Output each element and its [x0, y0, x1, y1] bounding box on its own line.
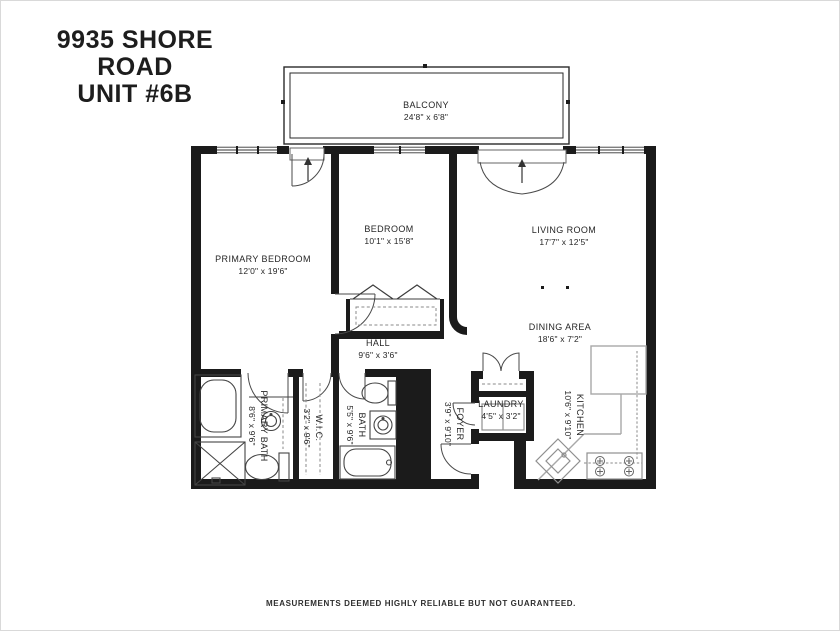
balcony-door-icon [290, 148, 324, 186]
entry-door-icon [441, 444, 471, 474]
bath-door-icon [339, 373, 365, 399]
bathtub-icon [340, 446, 395, 479]
primary-bedroom-door-icon [335, 294, 375, 334]
room-label-foyer: FOYER 3'9" x 9'10" [443, 402, 465, 446]
window-icon-primary-bedroom [215, 146, 279, 154]
upper-cabinet-lines [584, 351, 642, 463]
unit-line: UNIT #6B [25, 81, 245, 108]
fridge-icon [591, 346, 646, 394]
room-label-hall: HALL 9'6" x 3'6" [358, 338, 397, 360]
french-doors-icon [478, 150, 566, 194]
disclaimer-text: MEASUREMENTS DEEMED HIGHLY RELIABLE BUT … [1, 599, 840, 608]
vanity-sink-icon [370, 411, 396, 439]
shower-icon [195, 442, 245, 485]
room-label-primary-bath: PRIMARY BATH 8'6" x 9'6" [247, 390, 269, 461]
bathtub-icon [195, 375, 241, 437]
kitchen-fixtures [536, 346, 646, 483]
wic-door-icon [303, 373, 331, 401]
toilet-icon [362, 381, 396, 405]
stove-icon [587, 453, 642, 479]
room-label-wic: W.I.C. 3'2" x 9'6" [302, 408, 324, 447]
room-label-laundry: LAUNDRY 4'5" x 3'2" [478, 399, 524, 421]
floorplan-page: 9935 SHORE ROAD UNIT #6B BALCONY 24'8" x… [0, 0, 840, 631]
closet-double-door-icon [483, 353, 519, 371]
room-label-living-room: LIVING ROOM 17'7" x 12'5" [532, 225, 596, 247]
room-label-bedroom: BEDROOM 10'1" x 15'8" [364, 224, 413, 246]
primary-bath-fixtures [195, 375, 293, 485]
plan-title: 9935 SHORE ROAD UNIT #6B [25, 27, 245, 108]
room-label-dining-area: DINING AREA 18'6" x 7'2" [529, 322, 591, 344]
room-label-primary-bedroom: PRIMARY BEDROOM 12'0" x 19'6" [215, 254, 311, 276]
kitchen-sink-icon [536, 439, 580, 483]
window-icon-living-room [574, 146, 646, 154]
room-label-kitchen: KITCHEN 10'6" x 9'10" [563, 390, 585, 439]
address-line: 9935 SHORE ROAD [25, 27, 245, 81]
window-icon-bedroom [372, 146, 427, 154]
room-label-balcony: BALCONY 24'8" x 6'8" [403, 100, 449, 122]
room-label-bath: BATH 5'5" x 9'6" [345, 405, 367, 444]
bifold-door-icon [350, 285, 440, 299]
